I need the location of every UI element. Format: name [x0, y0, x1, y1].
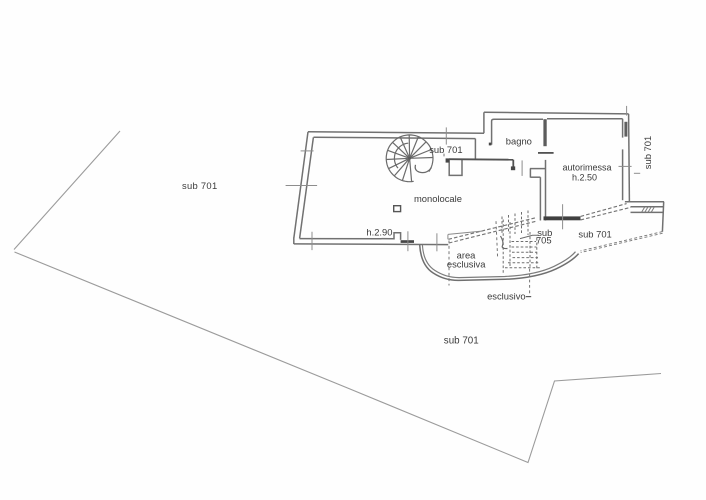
svg-text:sub 701: sub 701 [182, 180, 217, 191]
svg-text:autorimessa: autorimessa [563, 162, 612, 172]
svg-text:esclusivo: esclusivo [487, 290, 526, 301]
svg-text:bagno: bagno [506, 136, 532, 147]
svg-text:705: 705 [536, 235, 552, 246]
svg-text:h.2.50: h.2.50 [572, 173, 597, 183]
svg-text:monolocale: monolocale [414, 193, 462, 204]
svg-text:sub 701: sub 701 [642, 136, 653, 169]
svg-text:sub 701: sub 701 [429, 144, 462, 155]
svg-text:sub 701: sub 701 [444, 336, 479, 347]
svg-text:h.2.90: h.2.90 [366, 226, 392, 237]
svg-text:sub 701: sub 701 [578, 229, 611, 240]
svg-text:esclusiva: esclusiva [447, 259, 486, 270]
